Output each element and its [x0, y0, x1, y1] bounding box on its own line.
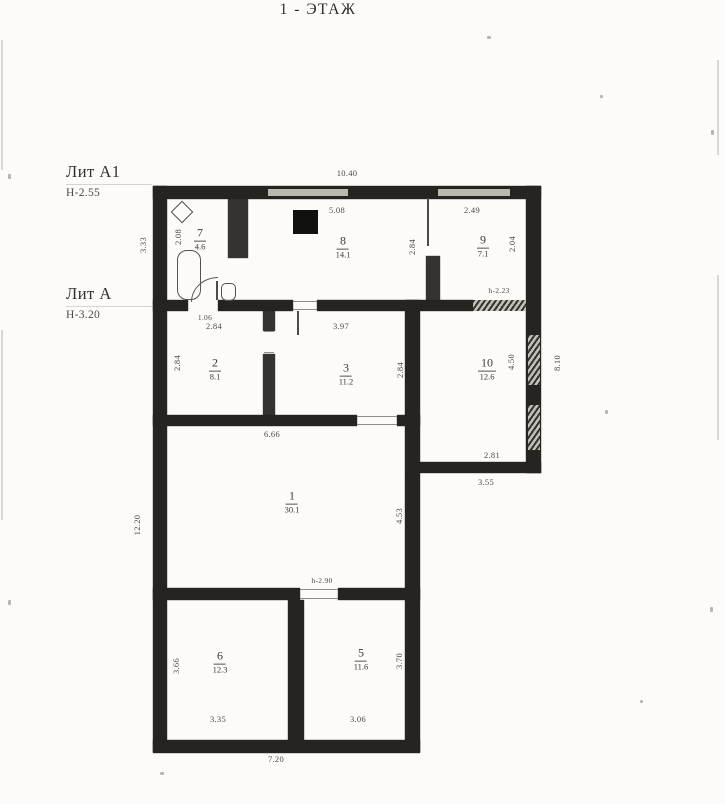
dim-west-side: 12.20: [132, 515, 142, 536]
room-label-7: 7 4.6: [194, 225, 206, 252]
wall: [263, 354, 275, 415]
floor-plan: 10.40 5.08 2.49 1.06 2.84 3.97 6.66 2.81…: [0, 0, 725, 804]
sink-symbol: [171, 201, 194, 224]
dim-room8-right: 2.84: [407, 239, 417, 255]
scan-artifact: [717, 60, 719, 155]
door-opening: [357, 424, 397, 425]
dim-overall-top: 10.40: [337, 168, 358, 178]
door-opening: [264, 352, 274, 353]
dim-passage-height-center: h-2.90: [311, 576, 332, 585]
hatched-wall: [473, 300, 526, 311]
toilet-symbol: [221, 283, 236, 301]
dim-room8-top: 5.08: [329, 205, 345, 215]
wall: [405, 473, 420, 752]
dim-room5-bottom: 3.06: [350, 714, 366, 724]
room-number: 6: [214, 650, 226, 665]
room-label-3: 3 11.2: [339, 360, 354, 387]
door-leaf: [297, 311, 299, 335]
scan-artifact: [160, 772, 164, 775]
window: [438, 189, 510, 196]
dim-room9-right: 2.04: [507, 236, 517, 252]
dim-annex10-bottom: 3.55: [478, 477, 494, 487]
room-number: 1: [286, 490, 298, 505]
dim-east-side: 8.10: [552, 355, 562, 371]
dim-room10-bottom: 2.81: [484, 450, 500, 460]
dim-room9-top: 2.49: [464, 205, 480, 215]
wall: [405, 300, 420, 473]
scan-artifact: [640, 700, 643, 703]
dim-room7-width: 2.08: [173, 229, 183, 245]
dim-annex-left: 3.33: [138, 237, 148, 253]
wall: [338, 588, 420, 600]
dim-overall-bottom: 7.20: [268, 754, 284, 764]
wall: [288, 600, 304, 740]
room-number: 3: [340, 362, 352, 377]
room-area: 12.3: [213, 665, 228, 674]
scan-artifact: [1, 40, 3, 170]
wall: [420, 462, 541, 473]
wall: [218, 300, 293, 311]
door-opening: [264, 331, 274, 332]
door-opening: [300, 589, 338, 590]
room-number: 5: [355, 647, 367, 662]
room-number: 9: [477, 234, 489, 249]
scan-artifact: [8, 174, 11, 179]
room-area: 30.1: [285, 505, 300, 514]
room-area: 11.6: [354, 662, 369, 671]
dim-room1-right: 4.53: [394, 508, 404, 524]
room-area: 7.1: [477, 249, 489, 258]
wall: [153, 415, 357, 426]
dim-room2-top: 2.84: [206, 321, 222, 331]
room-area: 11.2: [339, 377, 354, 386]
door-opening: [293, 301, 317, 302]
hatched-wall: [528, 405, 540, 450]
hatched-wall: [528, 335, 540, 385]
wall: [263, 311, 275, 331]
wall: [153, 740, 420, 753]
scanned-floor-plan-page: 1 - ЭТАЖ Лит А1 Н-2.55 Лит А Н-3.20: [0, 0, 725, 804]
wall: [153, 186, 167, 752]
dim-room10-right: 4.50: [506, 354, 516, 370]
door-opening: [293, 309, 317, 310]
dim-room5-right: 3.70: [394, 653, 404, 669]
scan-artifact: [8, 600, 11, 605]
room-label-5: 5 11.6: [354, 645, 369, 672]
room-number: 10: [478, 357, 496, 372]
room-area: 12.6: [478, 372, 496, 381]
wall: [153, 588, 300, 600]
room-area: 4.6: [194, 242, 206, 251]
room-number: 2: [209, 357, 221, 372]
room-area: 14.1: [336, 250, 351, 259]
room-label-10: 10 12.6: [478, 355, 496, 382]
window: [268, 189, 348, 196]
door-opening: [300, 598, 338, 599]
room-number: 8: [337, 235, 349, 250]
scan-artifact: [711, 130, 714, 135]
scan-artifact: [487, 36, 491, 39]
door-opening: [357, 416, 397, 417]
dim-room6-left: 3.66: [171, 658, 181, 674]
dim-passage-height-right: h-2.23: [488, 286, 509, 295]
scan-artifact: [605, 410, 608, 414]
dim-room6-bottom: 3.35: [210, 714, 226, 724]
room-label-1: 1 30.1: [285, 488, 300, 515]
room-area: 8.1: [209, 372, 221, 381]
door-leaf: [216, 281, 218, 300]
room-label-8: 8 14.1: [336, 233, 351, 260]
room-label-2: 2 8.1: [209, 355, 221, 382]
scan-artifact: [710, 607, 713, 612]
room-label-9: 9 7.1: [477, 232, 489, 259]
stove-symbol: [293, 210, 318, 234]
wall: [317, 300, 473, 311]
dim-room3-right: 2.84: [395, 362, 405, 378]
scan-artifact: [1, 330, 3, 520]
scan-artifact: [717, 275, 719, 440]
room-number: 7: [194, 227, 206, 242]
wall: [426, 256, 440, 306]
scan-artifact: [600, 95, 603, 98]
partition-line: [427, 198, 429, 246]
dim-room2-left: 2.84: [172, 355, 182, 371]
room-label-6: 6 12.3: [213, 648, 228, 675]
wall: [153, 300, 188, 311]
dim-room1-top: 6.66: [264, 429, 280, 439]
wall: [228, 198, 248, 258]
dim-room3-top: 3.97: [333, 321, 349, 331]
